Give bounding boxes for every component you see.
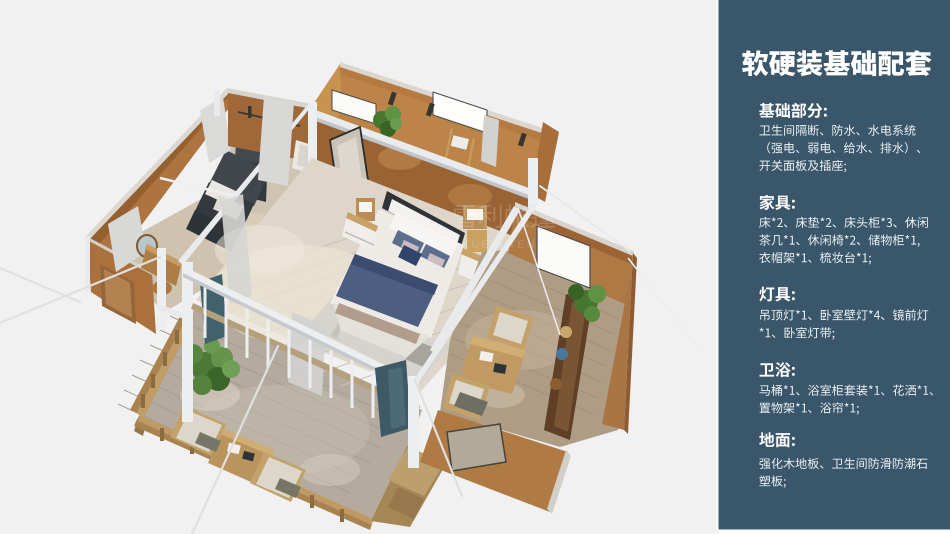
- svg-text:XUELI TENT: XUELI TENT: [462, 239, 545, 251]
